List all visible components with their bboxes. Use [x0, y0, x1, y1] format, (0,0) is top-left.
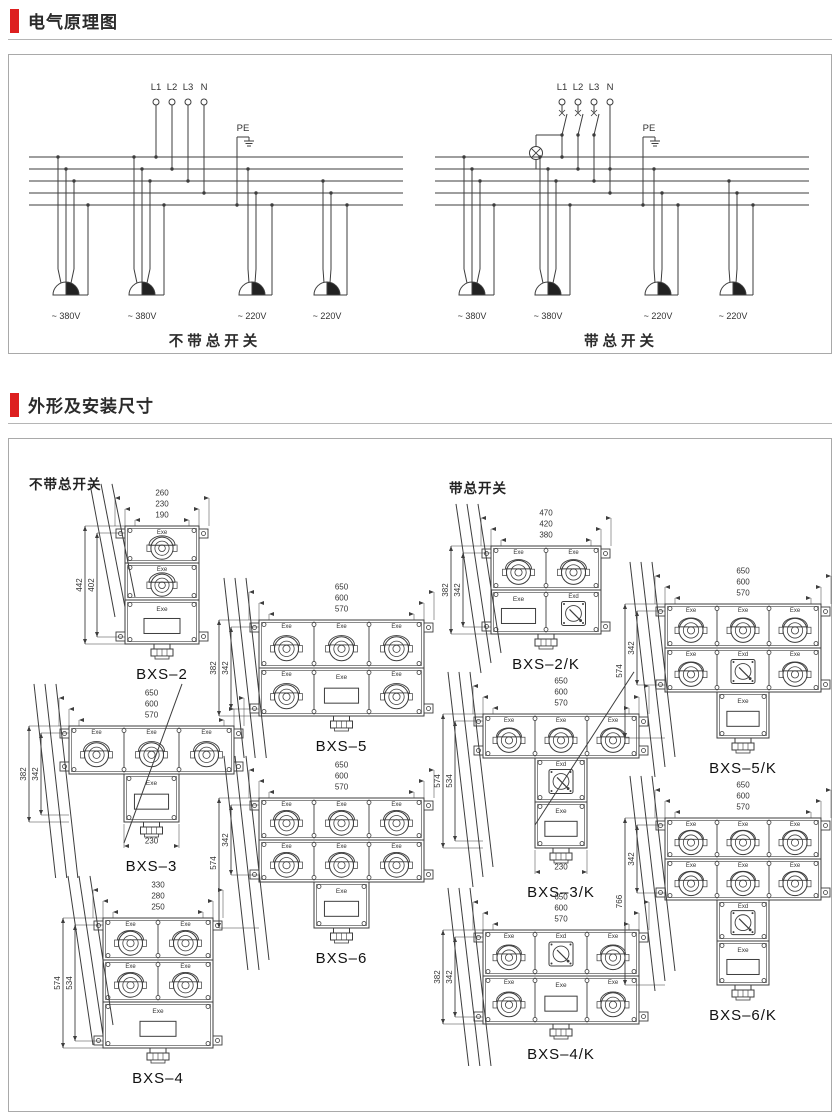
svg-text:342: 342: [221, 833, 230, 847]
svg-text:Exe: Exe: [737, 947, 749, 954]
svg-text:650: 650: [335, 583, 349, 592]
svg-text:600: 600: [736, 578, 750, 587]
svg-text:650: 650: [335, 761, 349, 770]
svg-text:600: 600: [736, 792, 750, 801]
svg-text:600: 600: [554, 688, 568, 697]
svg-text:Exe: Exe: [336, 888, 348, 895]
dimension-drawing-BXS-4: ExeExeExeExeExe330280250574534BXS–4: [53, 875, 231, 1090]
svg-text:Exe: Exe: [391, 672, 402, 678]
svg-text:L1: L1: [557, 82, 568, 93]
catalog-page: 电气原理图 L1L2L3NPE~ 380V~ 380V~ 220V~ 220V不…: [0, 8, 840, 1112]
svg-text:L1: L1: [151, 82, 162, 93]
svg-text:~ 220V: ~ 220V: [719, 311, 748, 321]
svg-text:260: 260: [155, 489, 169, 498]
svg-text:不带总开关: 不带总开关: [169, 332, 262, 350]
svg-text:442: 442: [75, 578, 84, 592]
svg-text:Exe: Exe: [790, 822, 801, 828]
svg-text:Exe: Exe: [391, 802, 402, 808]
svg-text:Exe: Exe: [336, 844, 347, 850]
svg-text:570: 570: [736, 589, 750, 598]
svg-text:574: 574: [615, 664, 624, 678]
dimension-drawing-BXS-6: ExeExeExeExeExeExeExe650600570574342BXS–…: [209, 755, 442, 970]
svg-text:PE: PE: [643, 123, 656, 134]
svg-text:Exd: Exd: [568, 594, 578, 600]
svg-text:~ 380V: ~ 380V: [534, 311, 563, 321]
svg-text:Exd: Exd: [738, 652, 748, 658]
svg-text:Exe: Exe: [180, 964, 191, 970]
svg-text:Exe: Exe: [157, 530, 168, 536]
svg-text:BXS–2: BXS–2: [136, 666, 188, 683]
svg-text:342: 342: [31, 767, 40, 781]
dimension-drawing-BXS-2: ExeExeExe260230190442402BXS–2: [75, 483, 217, 686]
svg-text:Exe: Exe: [737, 698, 749, 705]
svg-text:~ 220V: ~ 220V: [644, 311, 673, 321]
svg-text:600: 600: [554, 904, 568, 913]
svg-text:~ 380V: ~ 380V: [52, 311, 81, 321]
section-header-schematic: 电气原理图: [8, 8, 832, 40]
svg-text:470: 470: [539, 509, 553, 518]
svg-text:~ 380V: ~ 380V: [128, 311, 157, 321]
svg-text:Exe: Exe: [281, 844, 292, 850]
svg-text:~ 220V: ~ 220V: [238, 311, 267, 321]
section-title-schematic: 电气原理图: [28, 8, 118, 33]
svg-text:~ 380V: ~ 380V: [458, 311, 487, 321]
svg-text:Exe: Exe: [790, 652, 801, 658]
svg-text:330: 330: [151, 881, 165, 890]
svg-text:230: 230: [155, 500, 169, 509]
svg-text:PE: PE: [237, 123, 250, 134]
svg-text:Exe: Exe: [686, 863, 697, 869]
svg-text:534: 534: [65, 976, 74, 990]
section-header-dimensions: 外形及安装尺寸: [8, 392, 832, 424]
svg-text:Exe: Exe: [513, 550, 524, 556]
group-label-with-switch: 带总开关: [449, 477, 507, 497]
svg-text:Exe: Exe: [555, 982, 567, 989]
svg-text:570: 570: [736, 803, 750, 812]
svg-text:382: 382: [209, 661, 218, 675]
schematic-panel: L1L2L3NPE~ 380V~ 380V~ 220V~ 220V不带总开关 L…: [8, 54, 832, 354]
dimension-drawing-BXS-6-K: ExeExeExeExeExeExeExdExe650600570766342B…: [615, 775, 839, 1027]
svg-text:Exe: Exe: [504, 980, 515, 986]
svg-text:230: 230: [145, 837, 159, 846]
svg-text:BXS–6/K: BXS–6/K: [709, 1007, 777, 1024]
svg-text:Exe: Exe: [146, 780, 158, 787]
svg-text:574: 574: [53, 976, 62, 990]
svg-text:Exe: Exe: [555, 808, 567, 815]
svg-text:570: 570: [554, 699, 568, 708]
svg-text:Exe: Exe: [738, 608, 749, 614]
svg-text:N: N: [201, 82, 208, 93]
svg-text:342: 342: [627, 641, 636, 655]
svg-text:Exd: Exd: [556, 762, 566, 768]
svg-text:Exe: Exe: [336, 624, 347, 630]
svg-text:600: 600: [145, 700, 159, 709]
svg-text:382: 382: [433, 970, 442, 984]
svg-text:Exe: Exe: [686, 608, 697, 614]
svg-text:Exe: Exe: [556, 718, 567, 724]
svg-text:570: 570: [335, 783, 349, 792]
svg-text:Exe: Exe: [686, 822, 697, 828]
svg-text:382: 382: [19, 767, 28, 781]
circuit-diagram-with-main-switch: L1L2L3NPE~ 380V~ 380V~ 220V~ 220V带总开关: [421, 57, 825, 351]
svg-text:230: 230: [554, 863, 568, 872]
svg-text:带总开关: 带总开关: [584, 332, 658, 350]
svg-text:Exe: Exe: [157, 567, 168, 573]
svg-text:L2: L2: [573, 82, 584, 93]
svg-text:190: 190: [155, 511, 169, 520]
svg-text:BXS–5: BXS–5: [316, 738, 368, 755]
svg-text:380: 380: [539, 531, 553, 540]
dimension-drawing-BXS-2-K: ExeExeExeExd470420380382342BXS–2/K: [441, 503, 619, 676]
svg-text:570: 570: [554, 915, 568, 924]
svg-text:Exe: Exe: [156, 606, 168, 613]
svg-text:BXS–4/K: BXS–4/K: [527, 1046, 595, 1063]
svg-text:650: 650: [554, 677, 568, 686]
svg-text:766: 766: [615, 894, 624, 908]
svg-text:650: 650: [554, 893, 568, 902]
svg-text:Exe: Exe: [738, 822, 749, 828]
svg-text:N: N: [607, 82, 614, 93]
svg-text:Exe: Exe: [146, 730, 157, 736]
dimensions-panel: 不带总开关 带总开关 ExeExeExe260230190442402BXS–2…: [8, 438, 832, 1112]
svg-text:600: 600: [335, 594, 349, 603]
svg-text:574: 574: [209, 856, 218, 870]
svg-text:Exe: Exe: [391, 624, 402, 630]
svg-text:Exe: Exe: [513, 596, 525, 603]
svg-text:Exe: Exe: [281, 624, 292, 630]
svg-text:402: 402: [87, 578, 96, 592]
svg-text:BXS–3: BXS–3: [126, 858, 178, 875]
dimension-drawing-BXS-5-K: ExeExeExeExeExdExeExe650600570574342BXS–…: [615, 561, 839, 780]
svg-text:382: 382: [441, 583, 450, 597]
svg-text:280: 280: [151, 892, 165, 901]
svg-text:600: 600: [335, 772, 349, 781]
svg-text:Exe: Exe: [91, 730, 102, 736]
svg-text:BXS–4: BXS–4: [132, 1070, 184, 1087]
svg-text:250: 250: [151, 903, 165, 912]
svg-text:342: 342: [445, 970, 454, 984]
svg-text:Exe: Exe: [125, 922, 136, 928]
svg-text:Exe: Exe: [391, 844, 402, 850]
svg-text:Exe: Exe: [504, 718, 515, 724]
svg-text:Exd: Exd: [738, 904, 748, 910]
circuit-diagram-without-main-switch: L1L2L3NPE~ 380V~ 380V~ 220V~ 220V不带总开关: [15, 57, 419, 351]
red-accent-bar: [10, 9, 19, 33]
svg-text:Exe: Exe: [336, 674, 348, 681]
svg-text:Exe: Exe: [790, 608, 801, 614]
svg-text:Exe: Exe: [281, 802, 292, 808]
svg-text:342: 342: [221, 661, 230, 675]
svg-text:650: 650: [736, 781, 750, 790]
svg-text:Exd: Exd: [556, 934, 566, 940]
svg-text:420: 420: [539, 520, 553, 529]
svg-text:Exe: Exe: [152, 1008, 164, 1015]
svg-text:650: 650: [736, 567, 750, 576]
svg-text:574: 574: [433, 774, 442, 788]
svg-text:Exe: Exe: [790, 863, 801, 869]
svg-text:342: 342: [453, 583, 462, 597]
svg-text:Exe: Exe: [180, 922, 191, 928]
red-accent-bar: [10, 393, 19, 417]
svg-text:570: 570: [145, 711, 159, 720]
svg-text:Exe: Exe: [568, 550, 579, 556]
svg-text:Exe: Exe: [504, 934, 515, 940]
svg-text:BXS–6: BXS–6: [316, 950, 368, 967]
svg-text:Exe: Exe: [125, 964, 136, 970]
svg-text:~ 220V: ~ 220V: [313, 311, 342, 321]
svg-text:342: 342: [627, 852, 636, 866]
svg-text:Exe: Exe: [336, 802, 347, 808]
svg-text:L2: L2: [167, 82, 178, 93]
svg-text:L3: L3: [183, 82, 194, 93]
dimension-drawing-BXS-5: ExeExeExeExeExeExe650600570382342BXS–5: [209, 577, 442, 758]
section-title-dimensions: 外形及安装尺寸: [28, 392, 154, 417]
svg-text:Exe: Exe: [738, 863, 749, 869]
svg-text:570: 570: [335, 605, 349, 614]
svg-text:L3: L3: [589, 82, 600, 93]
svg-text:534: 534: [445, 774, 454, 788]
svg-text:Exe: Exe: [686, 652, 697, 658]
svg-text:Exe: Exe: [281, 672, 292, 678]
svg-text:650: 650: [145, 689, 159, 698]
